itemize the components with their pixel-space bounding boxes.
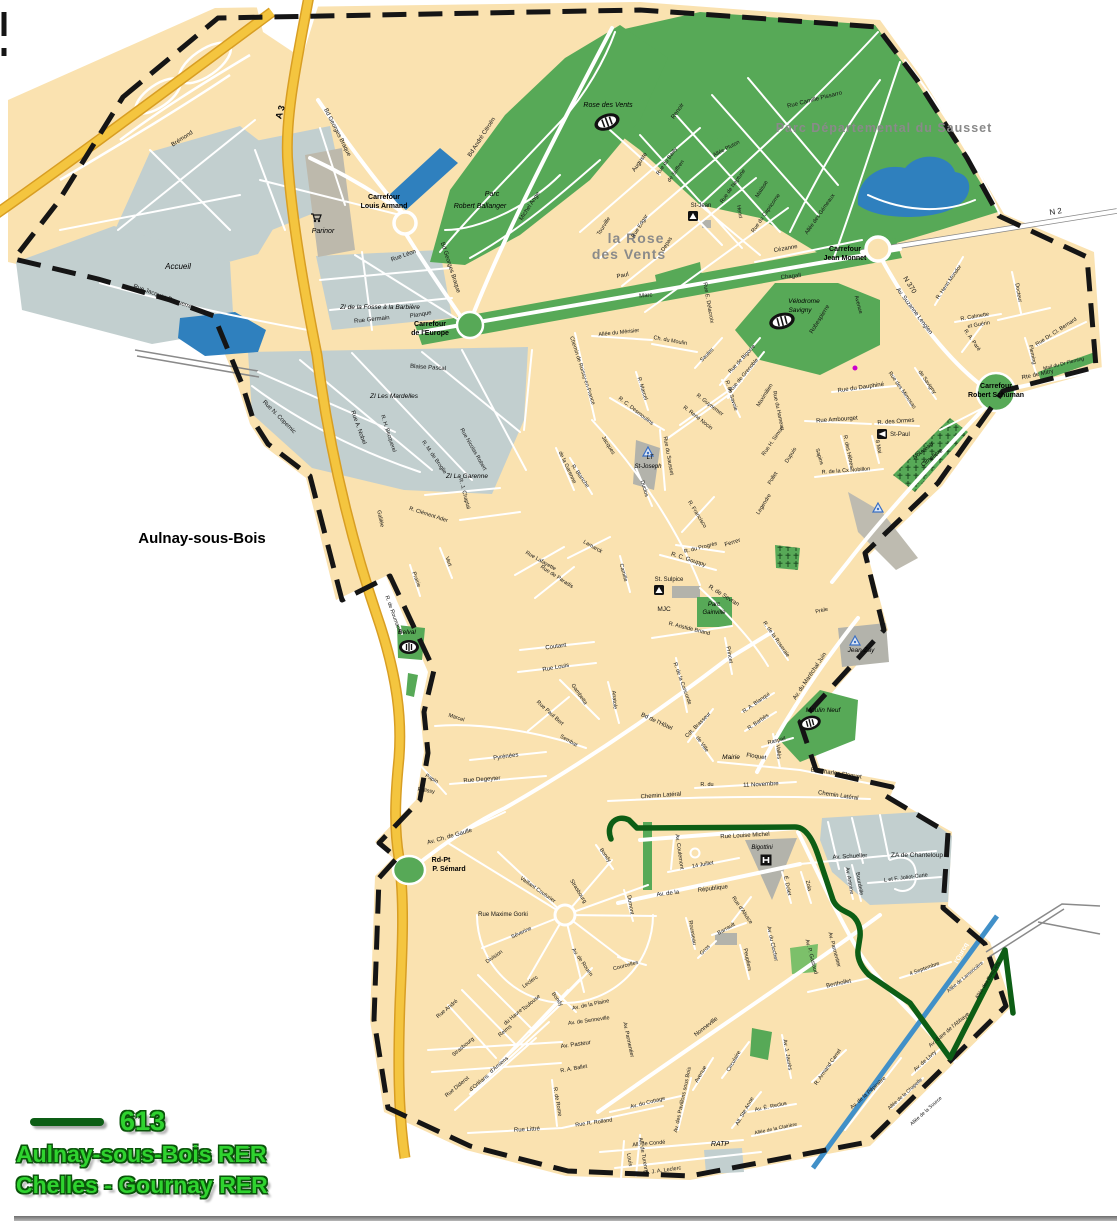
church-icon (877, 429, 887, 439)
map-label: MJC (657, 606, 671, 613)
old-cemetery (775, 545, 800, 570)
map-label: Accueil (164, 262, 191, 271)
map-label: Carrefour (414, 321, 446, 328)
map-label: Robert Schuman (968, 392, 1024, 399)
map-label: Rue Maxime Gorki (478, 912, 528, 918)
europe-roundabout (457, 312, 483, 338)
map-label: Parc (485, 191, 500, 198)
map-label: Mairie (722, 754, 740, 761)
map-label: Carrefour (980, 383, 1012, 390)
map-label: Louis Armand (361, 203, 408, 210)
legend-terminus-aulnay: Aulnay-sous-Bois RER (16, 1139, 268, 1170)
poi-dot (853, 366, 858, 371)
route-number: 613 (120, 1106, 165, 1137)
route-613-swatch (30, 1118, 104, 1126)
map-label: de l'Europe (411, 330, 449, 337)
bottom-border-bar (14, 1216, 1117, 1221)
church-icon (688, 211, 698, 221)
map-label: Parc Départemental du Sausset (776, 121, 993, 135)
legend-terminus-chelles: Chelles - Gournay RER (16, 1170, 268, 1201)
map-label: Jean Monnet (824, 255, 867, 262)
map-label: P. Sémard (432, 866, 465, 873)
map-label: St-Jean (691, 203, 712, 209)
map-label: Robert Ballanger (454, 203, 507, 210)
map-label: Carrefour (829, 246, 861, 253)
gorki-circle (555, 905, 575, 925)
map-page: Parc Départemental du Saussetla Rosedes … (0, 0, 1117, 1225)
map-label: RATP (711, 1141, 729, 1148)
church-icon (654, 585, 664, 595)
map-label: St-Paul (890, 432, 910, 438)
map-label: Gainville (702, 610, 726, 616)
map-canvas: Parc Départemental du Saussetla Rosedes … (0, 0, 1117, 1225)
hospital-icon (761, 855, 772, 866)
map-label: Rd-Pt (432, 857, 451, 864)
map-label: St. Sulpice (655, 577, 684, 583)
map-label: Moulin Neuf (806, 707, 842, 714)
map-label: Parinor (312, 228, 335, 235)
semard-roundabout (393, 856, 425, 884)
map-label: St-Joseph (634, 464, 662, 470)
map-label: Carrefour (368, 194, 400, 201)
map-label: R. du (700, 782, 713, 788)
legend: 613 Aulnay-sous-Bois RER Chelles - Gourn… (16, 1106, 268, 1201)
map-label: Parc (708, 602, 720, 608)
map-label: ZI Les Mardelles (369, 393, 419, 400)
map-label: Savigny (788, 307, 812, 314)
map-label: ZA de Chanteloup (891, 852, 943, 859)
stadium-icon (399, 640, 419, 654)
map-label: des Vents (592, 246, 666, 262)
map-label: ZI de la Fosse à la Barbière (339, 304, 420, 311)
map-label: ZI La Garenne (445, 473, 488, 480)
map-label: Rose des Vents (583, 102, 633, 109)
map-label: Vélodrome (788, 298, 820, 305)
map-label: Bigottini (751, 845, 773, 851)
map-label: Jean Zay (847, 647, 875, 654)
map-label: Aulnay-sous-Bois (138, 530, 266, 547)
